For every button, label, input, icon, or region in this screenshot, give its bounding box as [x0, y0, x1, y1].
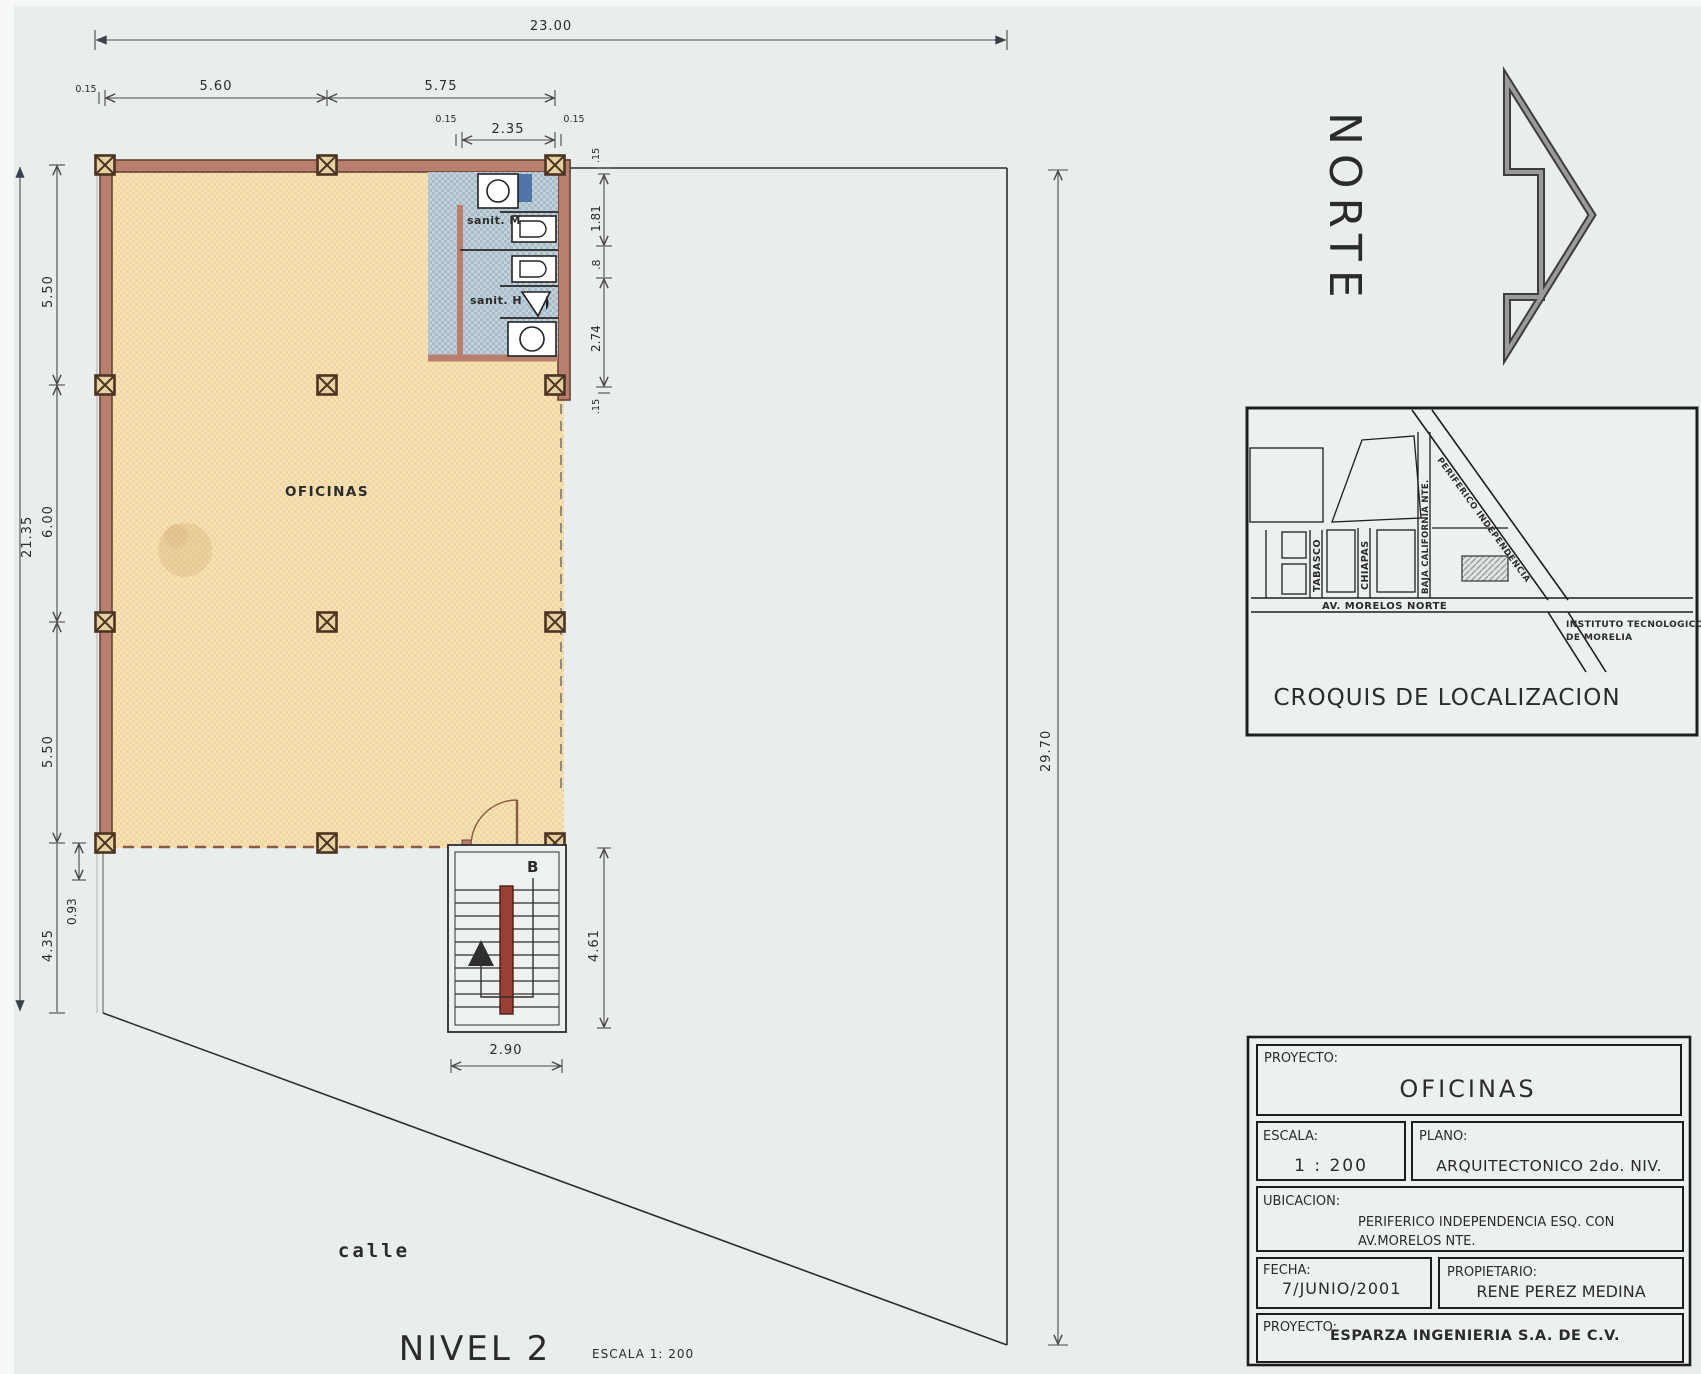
- column: [546, 156, 565, 175]
- dim-top-lead: 0.15: [75, 84, 96, 95]
- ubicacion-line1: PERIFERICO INDEPENDENCIA ESQ. CON: [1358, 1215, 1614, 1230]
- sanit-m-label: sanit. M: [467, 214, 521, 227]
- north-arrow-icon-inner: [1507, 80, 1592, 352]
- column: [318, 156, 337, 175]
- dim-bay-2: 5.75: [425, 79, 458, 94]
- dim-r-015b: .15: [591, 399, 602, 414]
- calle-boundary-line: [103, 1013, 1007, 1345]
- street-morelos: AV. MORELOS NORTE: [1322, 601, 1447, 612]
- dim-sanit-right: 0.15: [563, 114, 584, 125]
- dim-r-015a: .15: [591, 148, 602, 163]
- street-chiapas: CHIAPAS: [1360, 540, 1371, 590]
- column: [318, 834, 337, 853]
- dim-sanit-width: 2.35: [492, 122, 525, 137]
- dim-site-width: 23.00: [530, 19, 572, 34]
- ubicacion-label: UBICACION:: [1263, 1194, 1340, 1209]
- dim-site-depth: 29.70: [1039, 730, 1054, 772]
- floor-plan-drawing: sanit. M sanit. H OFICINAS: [0, 0, 1701, 1374]
- plano-label: PLANO:: [1419, 1129, 1467, 1144]
- north-arrow-icon: [1507, 80, 1592, 352]
- north-label: NORTE: [1319, 112, 1370, 307]
- column: [96, 613, 115, 632]
- proyecto-label: PROYECTO:: [1264, 1051, 1338, 1066]
- wall-right-upper: [558, 160, 570, 400]
- location-map-title: CROQUIS DE LOCALIZACION: [1273, 685, 1620, 711]
- empresa-value: ESPARZA INGENIERIA S.A. DE C.V.: [1330, 1328, 1620, 1344]
- dim-stair-width: 2.90: [490, 1043, 523, 1058]
- ubicacion-line2: AV.MORELOS NTE.: [1358, 1234, 1476, 1249]
- escala-label: ESCALA:: [1263, 1129, 1318, 1144]
- column: [546, 613, 565, 632]
- washbasin-top: [478, 174, 518, 208]
- dim-chain-left: 5.50 6.00 5.50 4.35 0.93: [41, 165, 86, 1013]
- dim-l-550b: 5.50: [41, 735, 56, 768]
- street-label: calle: [338, 1240, 410, 1262]
- column: [96, 834, 115, 853]
- dim-left-total: 21.35: [20, 516, 35, 558]
- building: sanit. M sanit. H OFICINAS: [96, 156, 571, 853]
- propietario-label: PROPIETARIO:: [1447, 1265, 1537, 1280]
- proyecto-value: OFICINAS: [1399, 1075, 1536, 1103]
- title-block: PROYECTO: OFICINAS ESCALA: 1 : 200 PLANO…: [1248, 1037, 1690, 1365]
- landmark-line2: DE MORELIA: [1566, 633, 1633, 643]
- column: [546, 376, 565, 395]
- propietario-value: RENE PEREZ MEDINA: [1476, 1282, 1645, 1301]
- location-map: TABASCO CHIAPAS BAJA CALIFORNIA NTE. PER…: [1247, 408, 1701, 735]
- dim-l-550a: 5.50: [41, 275, 56, 308]
- blueprint-sheet: sanit. M sanit. H OFICINAS: [0, 0, 1701, 1374]
- scan-stain-small: [164, 524, 188, 548]
- washbasin-bottom: [508, 322, 556, 356]
- scale-note: ESCALA 1: 200: [592, 1347, 694, 1361]
- dim-r-08: .8: [590, 260, 603, 271]
- north-indicator: NORTE: [1319, 80, 1592, 352]
- stair-section-label: B: [527, 858, 538, 876]
- plano-value: ARQUITECTONICO 2do. NIV.: [1436, 1157, 1662, 1175]
- site-marker: [1462, 556, 1508, 581]
- column: [96, 376, 115, 395]
- room-label: OFICINAS: [285, 484, 369, 500]
- dim-l-093: 0.93: [65, 898, 79, 925]
- wall-left: [100, 160, 112, 850]
- dim-r-181: 1.81: [589, 205, 603, 232]
- column: [318, 376, 337, 395]
- dim-l-435: 4.35: [41, 929, 56, 962]
- street-tabasco: TABASCO: [1312, 539, 1323, 592]
- dim-chain-right: .15 1.81 .8 2.74 .15: [589, 148, 612, 414]
- landmark-line1: INSTITUTO TECNOLOGICO: [1566, 620, 1701, 630]
- dim-stair-depth: 4.61: [587, 929, 602, 962]
- street-baja-california: BAJA CALIFORNIA NTE.: [1421, 480, 1431, 595]
- column: [318, 613, 337, 632]
- dim-sanit-left: 0.15: [435, 114, 456, 125]
- sanit-h-label: sanit. H: [470, 294, 522, 307]
- escala-value: 1 : 200: [1294, 1156, 1368, 1176]
- empresa-label: PROYECTO:: [1263, 1320, 1337, 1335]
- stair: B: [448, 845, 566, 1032]
- column: [96, 156, 115, 175]
- toilet-h: [512, 256, 556, 282]
- dim-l-600: 6.00: [41, 505, 56, 538]
- dim-r-274: 2.74: [589, 325, 603, 352]
- scan-margin-top: [0, 0, 1701, 6]
- level-title: NIVEL 2: [399, 1329, 552, 1369]
- scan-margin: [0, 0, 14, 1374]
- dim-bay-1: 5.60: [200, 79, 233, 94]
- fecha-label: FECHA:: [1263, 1263, 1311, 1278]
- fecha-value: 7/JUNIO/2001: [1282, 1279, 1401, 1298]
- sanitary-block: sanit. M sanit. H: [428, 172, 558, 360]
- stair-rail: [500, 886, 513, 1014]
- fixture-blue-counter: [518, 174, 532, 202]
